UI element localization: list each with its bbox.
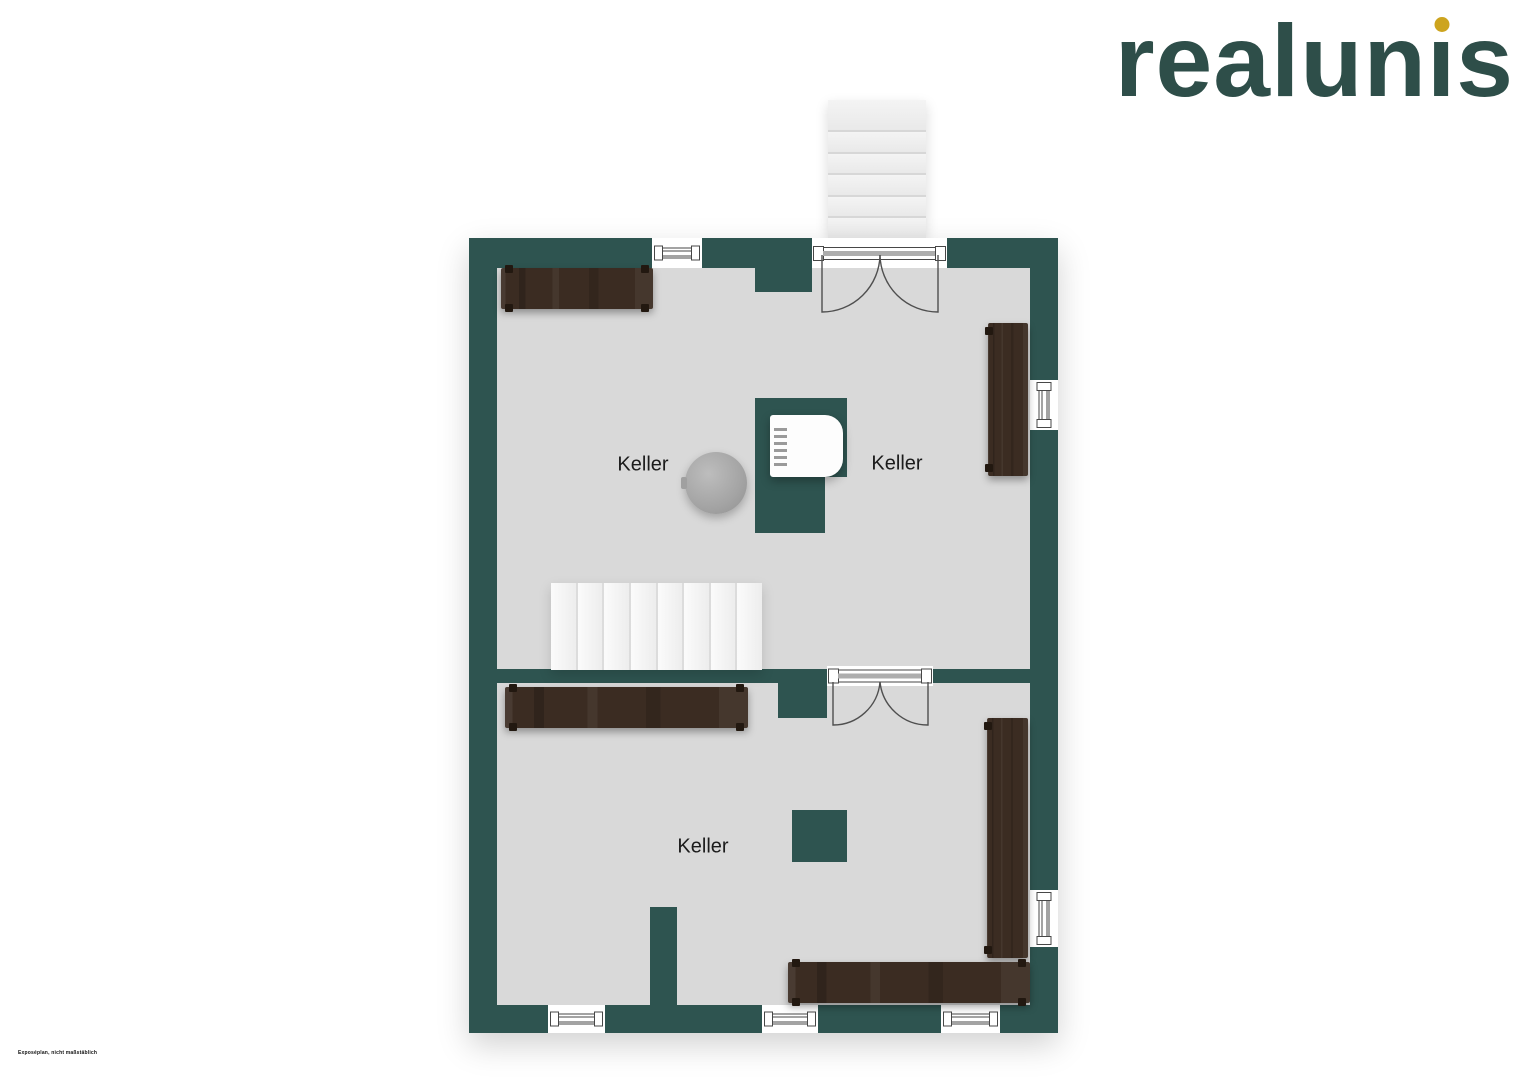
furniture-foot — [984, 946, 992, 954]
furniture-foot — [736, 723, 744, 731]
room-label-keller-upper-left: Keller — [617, 454, 668, 477]
stair-tread — [828, 173, 926, 195]
stair-tread — [828, 195, 926, 217]
realunis-logo: realunıs — [1115, 10, 1514, 112]
disclaimer-text: Exposéplan, nicht maßstäblich — [18, 1050, 97, 1056]
water-tank — [685, 452, 747, 514]
furniture-foot — [984, 722, 992, 730]
logo-text-start: realun — [1115, 4, 1427, 118]
stair-tread — [828, 100, 926, 130]
sideboard-upper-left — [501, 268, 653, 309]
sideboard-bottom — [788, 962, 1030, 1003]
furniture-foot — [985, 464, 993, 472]
furniture-foot — [1018, 998, 1026, 1006]
furniture-foot — [641, 265, 649, 273]
entrance-door-leaf-right — [880, 255, 938, 312]
room-label-keller-lower: Keller — [677, 836, 728, 859]
furniture-foot — [509, 723, 517, 731]
furniture-foot — [792, 959, 800, 967]
exterior-stairs — [828, 100, 926, 238]
stair-tread — [828, 130, 926, 152]
furniture-foot — [641, 304, 649, 312]
furniture-foot — [985, 327, 993, 335]
interior-door-leaf-left — [833, 682, 880, 725]
heating-unit — [770, 415, 843, 477]
logo-letter-i: ı — [1427, 10, 1456, 112]
basement-floor-plan: Keller Keller Keller — [469, 238, 1058, 1033]
furniture-foot — [792, 998, 800, 1006]
sideboard-lower-left — [505, 687, 748, 728]
room-label-keller-upper-right: Keller — [871, 453, 922, 476]
heater-vents — [774, 428, 787, 468]
sideboard-upper-right — [988, 323, 1028, 476]
furniture-foot — [509, 684, 517, 692]
stair-tread — [828, 152, 926, 174]
interior-door-leaf-right — [880, 682, 928, 725]
logo-text-end: s — [1456, 4, 1514, 118]
furniture-foot — [505, 304, 513, 312]
furniture-foot — [505, 265, 513, 273]
stair-tread — [828, 216, 926, 238]
furniture-foot — [1018, 959, 1026, 967]
sideboard-lower-right — [987, 718, 1028, 958]
door-swing-arcs — [469, 238, 1058, 1033]
entrance-door-leaf-left — [822, 255, 880, 312]
furniture-foot — [736, 684, 744, 692]
logo-i-dot — [1434, 17, 1449, 32]
floor-plan-page: realunıs — [0, 0, 1528, 1080]
